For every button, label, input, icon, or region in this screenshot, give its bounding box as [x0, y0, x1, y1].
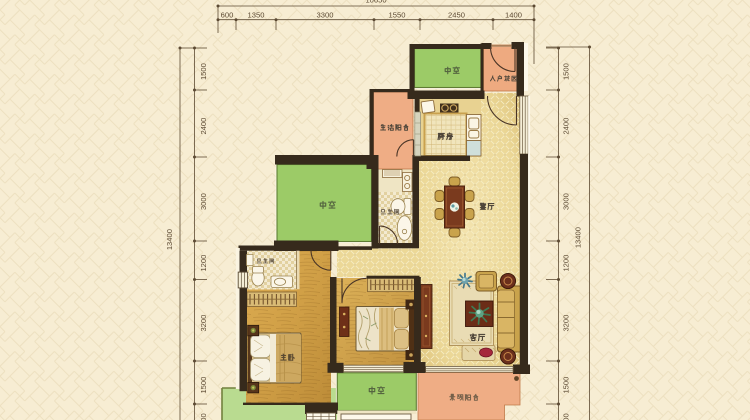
svg-text:3000: 3000 — [199, 193, 208, 210]
svg-text:2400: 2400 — [562, 118, 571, 135]
svg-text:1500: 1500 — [199, 63, 208, 80]
svg-text:13400: 13400 — [574, 227, 583, 248]
svg-text:1350: 1350 — [248, 11, 265, 20]
svg-text:1500: 1500 — [562, 63, 571, 80]
svg-text:1200: 1200 — [199, 255, 208, 272]
svg-text:3000: 3000 — [562, 193, 571, 210]
svg-text:2400: 2400 — [199, 118, 208, 135]
svg-text:10650: 10650 — [365, 0, 386, 4]
svg-text:600: 600 — [199, 413, 208, 420]
svg-text:600: 600 — [562, 413, 571, 420]
svg-text:1550: 1550 — [389, 11, 406, 20]
svg-text:3200: 3200 — [562, 315, 571, 332]
svg-text:1500: 1500 — [562, 377, 571, 394]
svg-text:1400: 1400 — [505, 11, 522, 20]
svg-text:600: 600 — [221, 11, 234, 20]
svg-text:3300: 3300 — [317, 11, 334, 20]
svg-text:1500: 1500 — [199, 377, 208, 394]
svg-text:13400: 13400 — [165, 229, 174, 250]
svg-text:2450: 2450 — [448, 11, 465, 20]
svg-text:3200: 3200 — [199, 315, 208, 332]
svg-text:1200: 1200 — [562, 255, 571, 272]
